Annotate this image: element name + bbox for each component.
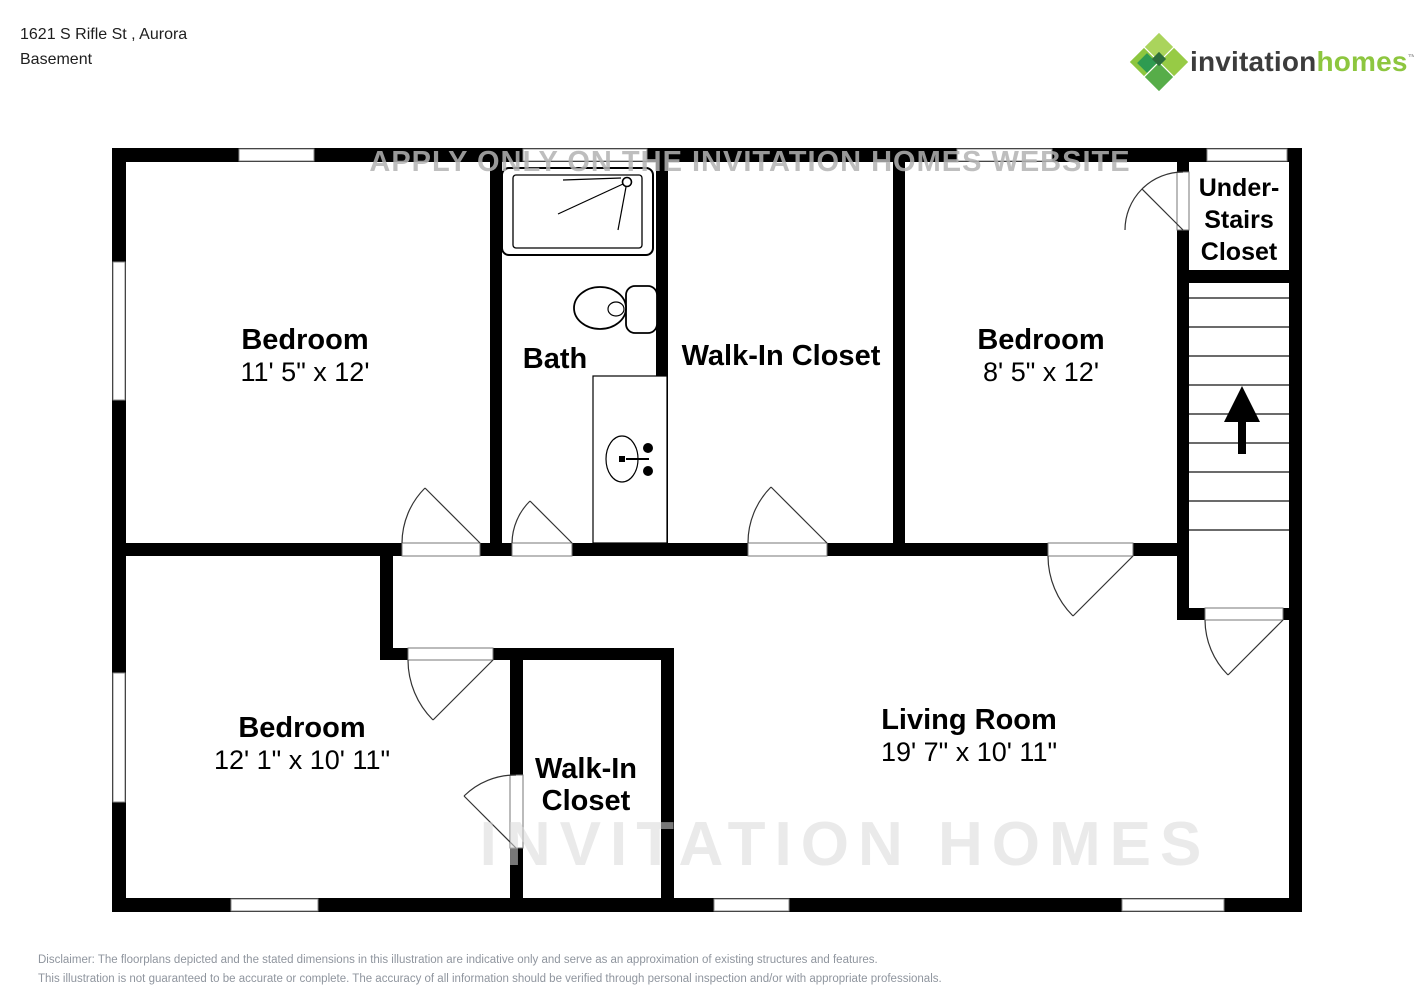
- door-arc: [1205, 620, 1228, 675]
- door-panel: [512, 543, 572, 556]
- window-living-bottom-2: [1122, 899, 1224, 911]
- wall-mid-5: [1133, 543, 1189, 556]
- door-arc: [464, 775, 516, 796]
- walkin-bottom-label-1: Walk-In: [535, 753, 637, 785]
- wall-mid-1: [112, 543, 402, 556]
- wall-stairs-bottom-1: [1177, 608, 1205, 620]
- window-bedroom3-bottom: [231, 899, 318, 911]
- stairs-up-arrow-shaft: [1238, 422, 1246, 454]
- door-arc: [748, 487, 771, 543]
- understairs-label-1: Under-: [1199, 174, 1280, 202]
- shower-head-icon: [623, 178, 632, 187]
- door-arc: [512, 501, 530, 543]
- doors: [402, 172, 1283, 848]
- door-leaf: [771, 487, 827, 543]
- wall-mid-2: [480, 543, 512, 556]
- window-bedroom1-top: [239, 149, 314, 161]
- door-leaf: [530, 501, 572, 543]
- toilet-bowl-inner: [608, 302, 624, 316]
- understairs-label-2: Stairs: [1204, 206, 1273, 234]
- door-panel: [748, 543, 827, 556]
- wall-stairs-left: [1177, 230, 1189, 620]
- wall-stairs-bottom-2: [1283, 608, 1302, 620]
- door-leaf: [425, 488, 480, 543]
- wall-mid-3: [572, 543, 748, 556]
- room-labels: Bedroom 11' 5" x 12' Bath Walk-In Closet…: [214, 174, 1279, 817]
- sink-drain: [619, 456, 625, 462]
- door-panel: [408, 648, 493, 660]
- floorplan-drawing: Bedroom 11' 5" x 12' Bath Walk-In Closet…: [0, 0, 1414, 1000]
- door-bedroom2: [1048, 543, 1133, 616]
- door-panel: [1205, 608, 1283, 620]
- floorplan-page: 1621 S Rifle St , Aurora Basement invita…: [0, 0, 1414, 1000]
- wall-mid-4: [827, 543, 1048, 556]
- door-arc: [402, 488, 425, 543]
- walls: [112, 148, 1302, 912]
- wall-outer-right: [1289, 148, 1302, 912]
- door-panel: [402, 543, 480, 556]
- door-leaf: [1073, 556, 1133, 616]
- bedroom3-dims: 12' 1" x 10' 11": [214, 745, 390, 775]
- disclaimer-line-2: This illustration is not guaranteed to b…: [38, 970, 942, 989]
- disclaimer-line-1: Disclaimer: The floorplans depicted and …: [38, 951, 942, 970]
- living-room-label: Living Room: [881, 704, 1057, 736]
- faucet-handle: [643, 443, 653, 453]
- toilet-tank: [626, 286, 657, 333]
- window-bedroom1-left: [113, 262, 125, 400]
- bath-label: Bath: [523, 343, 587, 375]
- watermark-top: APPLY ONLY ON THE INVITATION HOMES WEBSI…: [369, 146, 1130, 178]
- understairs-label-3: Closet: [1201, 238, 1278, 266]
- door-understairs-closet: [1125, 172, 1189, 230]
- windows: [113, 149, 1287, 911]
- faucet-handle: [643, 466, 653, 476]
- wall-bedroom2-left: [893, 162, 905, 543]
- bedroom1-dims: 11' 5" x 12': [241, 357, 370, 387]
- disclaimer: Disclaimer: The floorplans depicted and …: [38, 951, 942, 989]
- door-panel: [1048, 543, 1133, 556]
- door-arc: [408, 660, 433, 720]
- bedroom3-label: Bedroom: [238, 712, 365, 744]
- door-arc: [1048, 556, 1073, 616]
- door-walkin-top: [748, 487, 827, 556]
- window-living-bottom-1: [714, 899, 789, 911]
- wall-wicbottom-left-upper: [510, 660, 523, 775]
- living-room-dims: 19' 7" x 10' 11": [881, 737, 1057, 767]
- stairs-up-arrow-head: [1224, 386, 1260, 422]
- window-understairs-top: [1207, 149, 1287, 161]
- door-bedroom3: [408, 648, 493, 720]
- staircase: [1189, 298, 1289, 530]
- shower-tray: [513, 175, 642, 248]
- door-leaf: [433, 660, 493, 720]
- door-leaf: [1228, 620, 1283, 675]
- door-bath: [512, 501, 572, 556]
- wall-hall-1: [380, 648, 408, 660]
- wall-stairs-left-upper: [1177, 162, 1189, 172]
- wall-hall-2: [493, 648, 674, 660]
- bedroom2-label: Bedroom: [977, 324, 1104, 356]
- bedroom2-dims: 8' 5" x 12': [983, 357, 1099, 387]
- bedroom1-label: Bedroom: [241, 324, 368, 356]
- door-stairs: [1205, 608, 1283, 675]
- wall-understairs-bottom: [1177, 270, 1289, 283]
- walkin-top-label: Walk-In Closet: [682, 340, 881, 372]
- window-bedroom3-left: [113, 673, 125, 802]
- door-panel: [1177, 172, 1189, 230]
- wall-bath-left: [490, 162, 502, 543]
- wall-bedroom3-right: [380, 543, 393, 660]
- door-bedroom1: [402, 488, 480, 556]
- watermark-bottom: INVITATION HOMES: [480, 810, 1211, 879]
